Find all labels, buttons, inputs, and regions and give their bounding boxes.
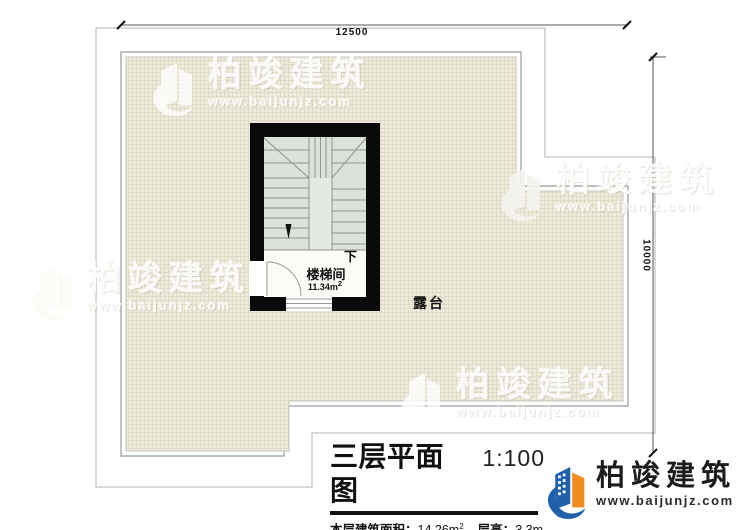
stairwell-area-sup: 2: [338, 279, 342, 288]
floor-area-value: 14.26m: [418, 523, 460, 530]
window: [286, 297, 332, 311]
logo-tower-left: [555, 467, 570, 509]
stairwell-area-label: 11.34m2: [296, 279, 354, 292]
stair-direction-label: 下: [344, 246, 357, 265]
floor-area-label: 本层建筑面积：: [330, 523, 418, 530]
terrace-label: 露台: [413, 293, 445, 313]
brand-name: 柏竣建筑: [596, 459, 736, 493]
brand-logo-icon: [543, 459, 590, 520]
floor-height-label: 层高：: [478, 523, 516, 530]
stairwell-area-value: 11.34m: [308, 282, 338, 292]
door-opening: [249, 261, 264, 296]
logo-tower-right: [572, 473, 584, 508]
drawing-scale: 1:100: [482, 445, 545, 472]
dimension-height-label: 10000: [641, 226, 652, 286]
floor-info: 本层建筑面积：14.26m2层高：3.3m: [330, 519, 545, 530]
floor-height-value: 3.3m: [515, 523, 543, 530]
dimension-width-label: 12500: [322, 27, 382, 38]
brand-footer: 柏竣建筑 www.baijunjz.com: [543, 459, 736, 520]
stair-well-column: [309, 178, 332, 250]
title-underline: [330, 511, 538, 515]
floor-plan-canvas: 柏竣建筑 www.baijunjz.com 柏竣建筑 www.baijunjz.…: [0, 0, 750, 530]
title-block: 三层平面图 1:100 本层建筑面积：14.26m2层高：3.3m: [330, 440, 545, 530]
drawing-title: 三层平面图: [330, 440, 472, 508]
brand-url: www.baijunjz.com: [596, 493, 736, 508]
floor-area-sup: 2: [459, 522, 463, 530]
